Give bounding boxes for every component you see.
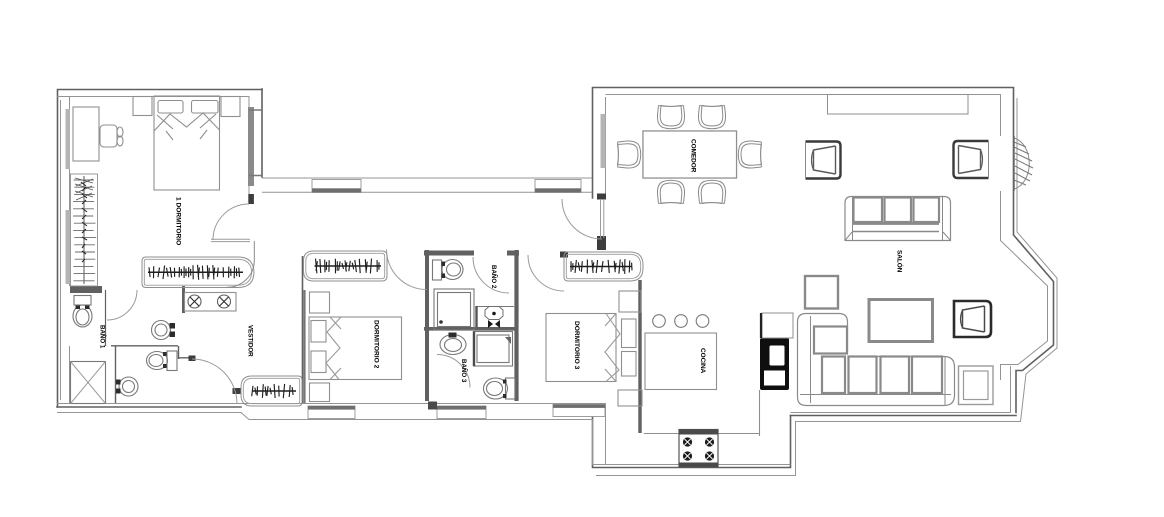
svg-text:BAÑO 1: BAÑO 1 — [99, 325, 106, 349]
svg-text:COCINA: COCINA — [699, 348, 706, 374]
svg-text:BAÑO 2: BAÑO 2 — [490, 265, 497, 289]
svg-text:VESTIDOR: VESTIDOR — [247, 325, 254, 357]
svg-text:1 DORMITORIO: 1 DORMITORIO — [175, 197, 182, 245]
svg-text:COMEDOR: COMEDOR — [690, 139, 697, 173]
svg-text:BAÑO 3: BAÑO 3 — [460, 359, 467, 383]
svg-text:SALÓN: SALÓN — [896, 250, 905, 273]
svg-text:DORMITORIO 2: DORMITORIO 2 — [373, 320, 380, 369]
svg-text:DORMITORIO 3: DORMITORIO 3 — [573, 321, 580, 370]
